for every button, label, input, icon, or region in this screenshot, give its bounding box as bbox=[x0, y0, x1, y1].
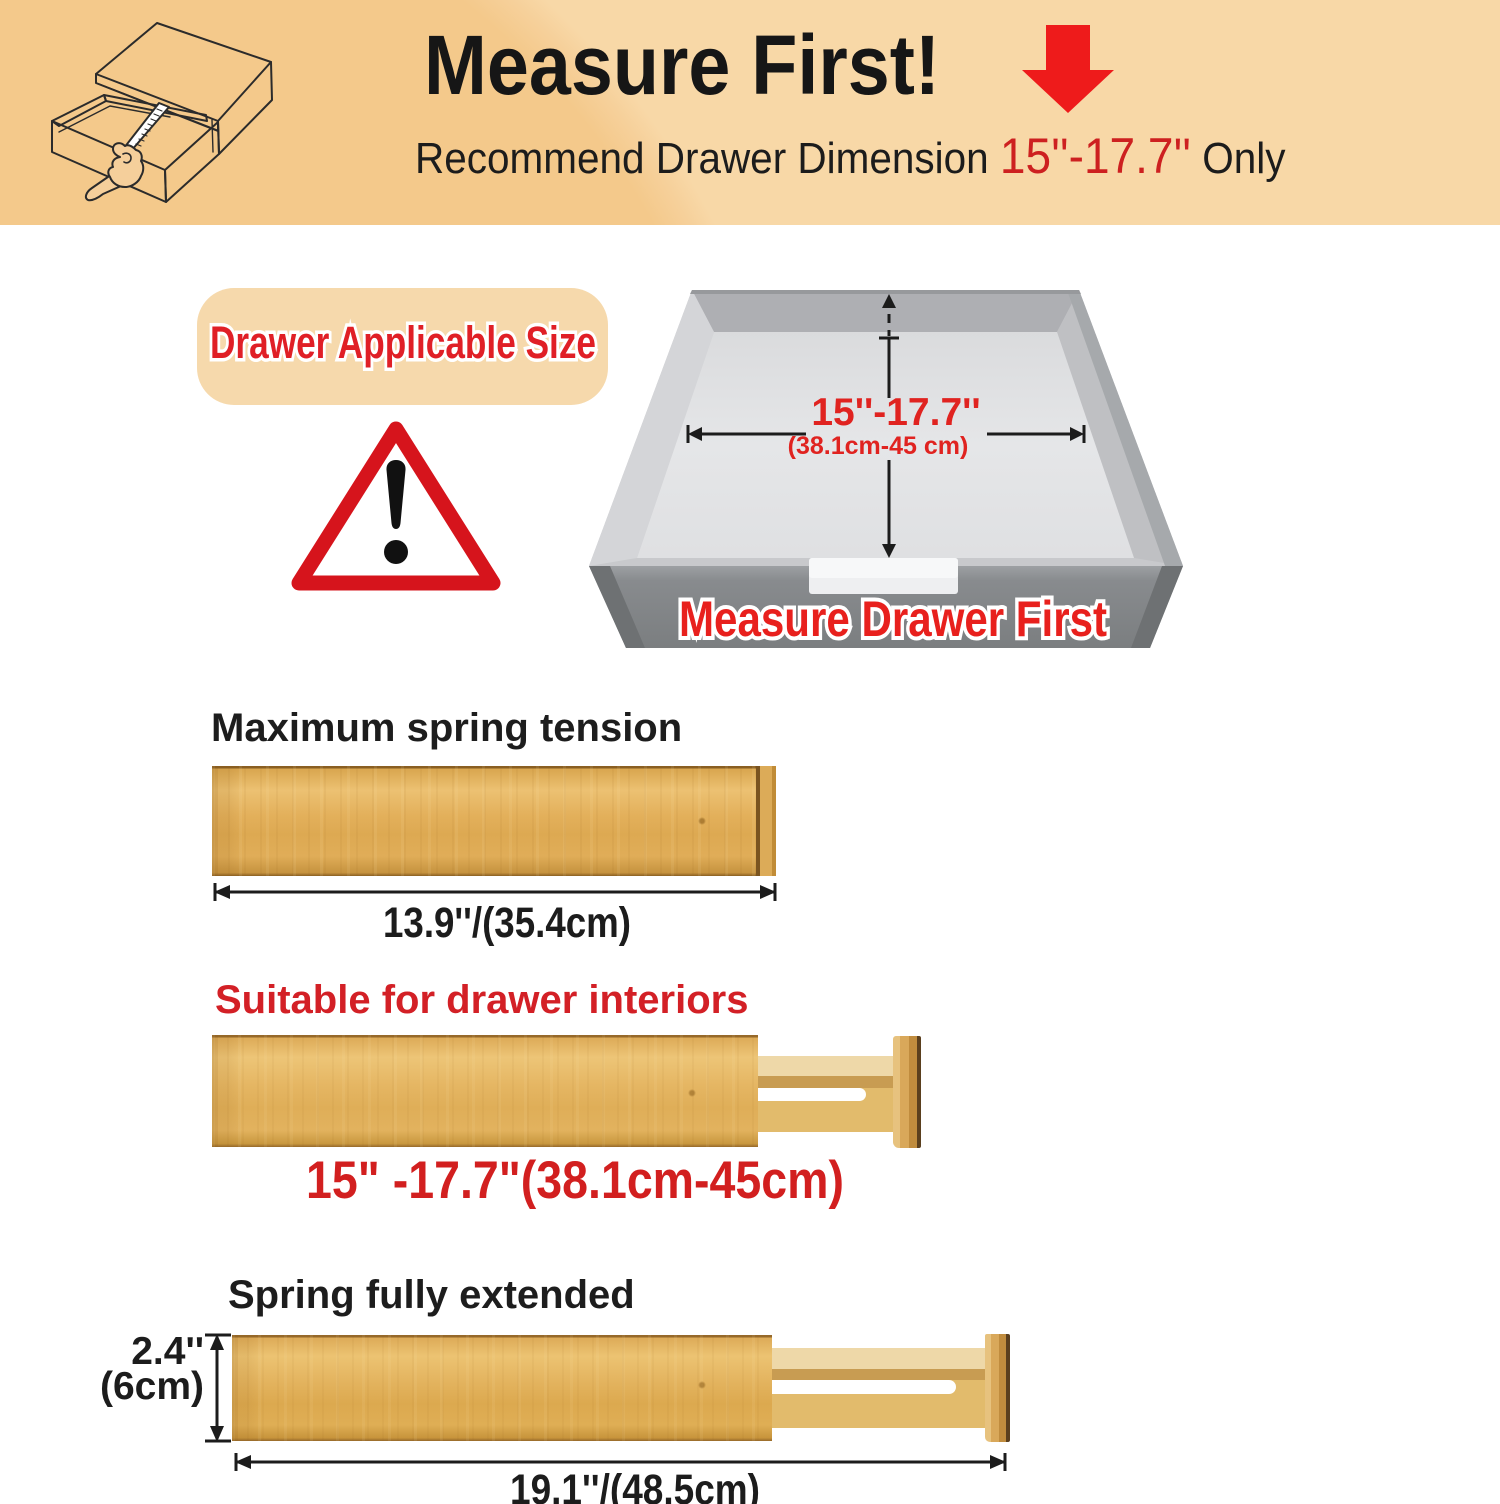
svg-text:(38.1cm-45 cm): (38.1cm-45 cm) bbox=[788, 432, 969, 460]
svg-text:Measure Drawer First: Measure Drawer First bbox=[679, 591, 1107, 647]
svg-text:Drawer Applicable Size: Drawer Applicable Size bbox=[210, 317, 596, 368]
svg-text:15''-17.7'': 15''-17.7'' bbox=[811, 391, 980, 434]
svg-text:13.9''/(35.4cm): 13.9''/(35.4cm) bbox=[383, 899, 631, 947]
svg-text:19.1''/(48.5cm): 19.1''/(48.5cm) bbox=[510, 1470, 760, 1504]
svg-text:Measure First!: Measure First! bbox=[424, 20, 940, 105]
svg-text:15" -17.7"(38.1cm-45cm): 15" -17.7"(38.1cm-45cm) bbox=[306, 1151, 844, 1210]
